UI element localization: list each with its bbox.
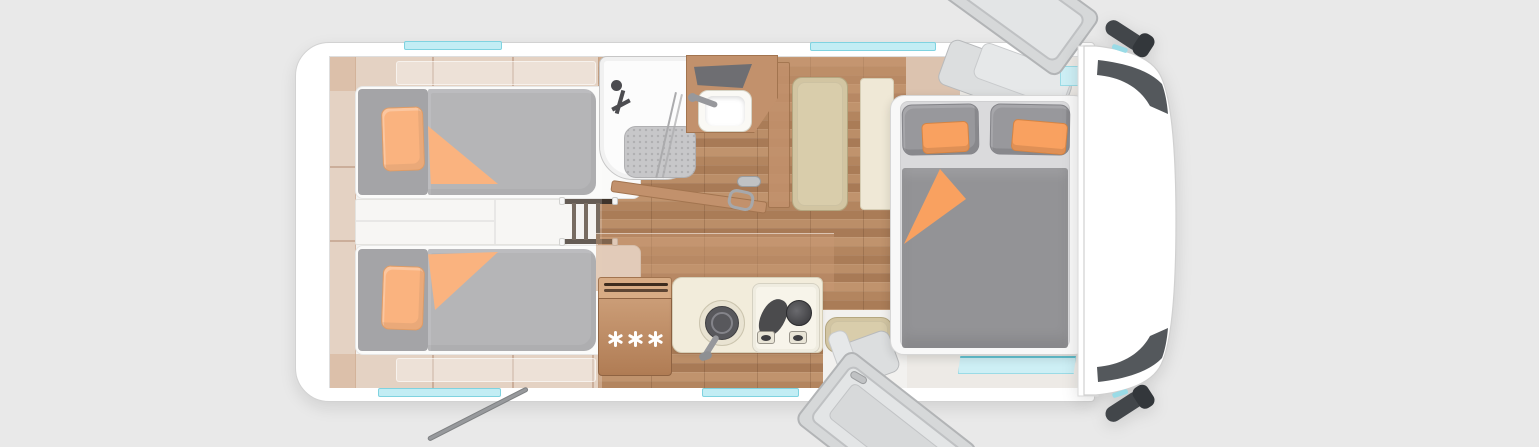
kitchen-sink-ring <box>711 312 733 334</box>
bathroom-door-handle <box>737 176 761 187</box>
ladder-rung <box>572 203 576 240</box>
basin-faucet-icon <box>688 93 697 102</box>
single-bed-top-pillow <box>381 106 425 171</box>
fridge-top <box>598 277 672 299</box>
dinette-bench-cushion <box>797 82 843 206</box>
burner-large <box>786 300 812 326</box>
ladder-rung <box>584 203 588 240</box>
freezer-star-icon <box>627 331 643 347</box>
ladder-cap <box>612 197 618 205</box>
window-bottom-left <box>378 388 501 397</box>
overhead-locker-inset <box>396 61 596 85</box>
ladder-rail <box>562 199 614 204</box>
cabinet-divider-line <box>356 220 494 222</box>
shelf-divider <box>330 240 356 242</box>
fridge: *** <box>598 298 672 376</box>
cab <box>1040 0 1195 447</box>
motorhome-floorplan: *** <box>0 0 1539 447</box>
shelf-divider <box>330 166 356 168</box>
single-bed-bottom-pillow <box>381 265 425 330</box>
fridge-vent-slot <box>604 289 668 292</box>
fridge-vent-slot <box>604 283 668 286</box>
freezer-star-icon <box>647 331 663 347</box>
wardrobe-rear-wall <box>330 57 356 388</box>
freezer-symbol-text: *** <box>599 299 600 300</box>
window-top-left <box>404 41 502 50</box>
ladder-cap <box>559 197 565 205</box>
dinette-table <box>860 78 894 210</box>
drop-down-bed-cushion-left <box>921 121 970 154</box>
stove-knob <box>757 331 775 344</box>
freezer-star-icon <box>607 331 623 347</box>
cabinet-divider-line <box>494 200 496 244</box>
ladder-cap <box>559 238 565 246</box>
bathroom-mirror <box>694 64 752 88</box>
overhead-locker-inset <box>396 358 596 382</box>
stove-knob <box>789 331 807 344</box>
window-bottom-right <box>702 388 799 397</box>
window-top-right <box>810 42 936 51</box>
bedside-cabinet <box>355 199 573 245</box>
